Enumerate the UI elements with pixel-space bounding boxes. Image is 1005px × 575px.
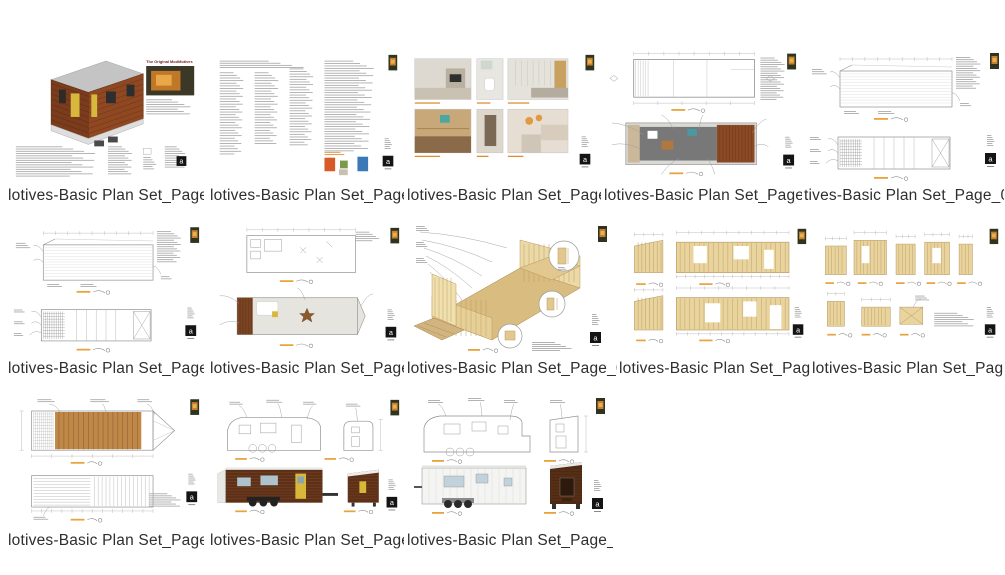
svg-text:The Original ModMotives: The Original ModMotives	[146, 59, 193, 64]
file-thumbnail-page-10[interactable]: alotives-Basic Plan Set_Page_0	[812, 218, 1003, 378]
file-thumbnail-page-01[interactable]: The Original ModMotivesalotives-Basic Pl…	[8, 45, 204, 205]
plan-sheet-image-page-02: a	[210, 45, 404, 185]
file-caption: lotives-Basic Plan Set_Page_1	[210, 532, 404, 550]
file-thumbnail-page-02[interactable]: alotives-Basic Plan Set_Page_0	[210, 45, 404, 205]
file-caption: lotives-Basic Plan Set_Page_1	[407, 532, 613, 550]
file-caption: lotives-Basic Plan Set_Page_0	[8, 360, 204, 378]
plan-sheet-image-page-10: a	[812, 218, 1003, 358]
file-thumbnail-page-11[interactable]: alotives-Basic Plan Set_Page_1	[8, 390, 204, 550]
file-caption: tives-Basic Plan Set_Page_05	[804, 187, 1004, 205]
file-caption: lotives-Basic Plan Set_Page_0	[210, 187, 404, 205]
plan-sheet-image-page-07: a	[210, 218, 404, 358]
file-thumbnail-page-12[interactable]: alotives-Basic Plan Set_Page_1	[210, 390, 404, 550]
plan-sheet-image-page-11: a	[8, 390, 204, 530]
file-thumbnail-page-09[interactable]: alotives-Basic Plan Set_Page_0	[619, 218, 810, 378]
thumbnail-gallery: The Original ModMotivesalotives-Basic Pl…	[0, 0, 1005, 575]
file-thumbnail-page-13[interactable]: alotives-Basic Plan Set_Page_1	[407, 390, 613, 550]
file-caption: lotives-Basic Plan Set_Page_0	[8, 187, 204, 205]
file-caption: lotives-Basic Plan Set_Page_0	[210, 360, 404, 378]
svg-text:a: a	[796, 326, 800, 334]
plan-sheet-image-page-03: a	[407, 45, 601, 185]
plan-sheet-image-page-04: a	[604, 45, 802, 185]
file-thumbnail-page-05[interactable]: atives-Basic Plan Set_Page_05	[804, 45, 1004, 205]
file-caption: lotives-Basic Plan Set_Page_0	[812, 360, 1003, 378]
plan-sheet-image-page-13: a	[407, 390, 613, 530]
file-thumbnail-page-08[interactable]: alotives-Basic Plan Set_Page_0	[407, 218, 617, 378]
svg-text:a: a	[988, 326, 992, 334]
plan-sheet-image-page-08: a	[407, 218, 617, 358]
file-thumbnail-page-04[interactable]: alotives-Basic Plan Set_Page_0	[604, 45, 802, 205]
file-caption: lotives-Basic Plan Set_Page_0	[407, 187, 601, 205]
svg-text:a: a	[180, 159, 184, 166]
file-caption: lotives-Basic Plan Set_Page_1	[8, 532, 204, 550]
file-thumbnail-page-06[interactable]: alotives-Basic Plan Set_Page_0	[8, 218, 204, 378]
plan-sheet-image-page-05: a	[804, 45, 1004, 185]
plan-sheet-image-page-12: a	[210, 390, 404, 530]
file-caption: lotives-Basic Plan Set_Page_0	[407, 360, 617, 378]
file-thumbnail-page-03[interactable]: alotives-Basic Plan Set_Page_0	[407, 45, 601, 205]
file-caption: lotives-Basic Plan Set_Page_0	[604, 187, 802, 205]
file-caption: lotives-Basic Plan Set_Page_0	[619, 360, 810, 378]
plan-sheet-image-page-06: a	[8, 218, 204, 358]
plan-sheet-image-page-01: The Original ModMotivesa	[8, 45, 204, 185]
plan-sheet-image-page-09: a	[619, 218, 810, 358]
file-thumbnail-page-07[interactable]: alotives-Basic Plan Set_Page_0	[210, 218, 404, 378]
